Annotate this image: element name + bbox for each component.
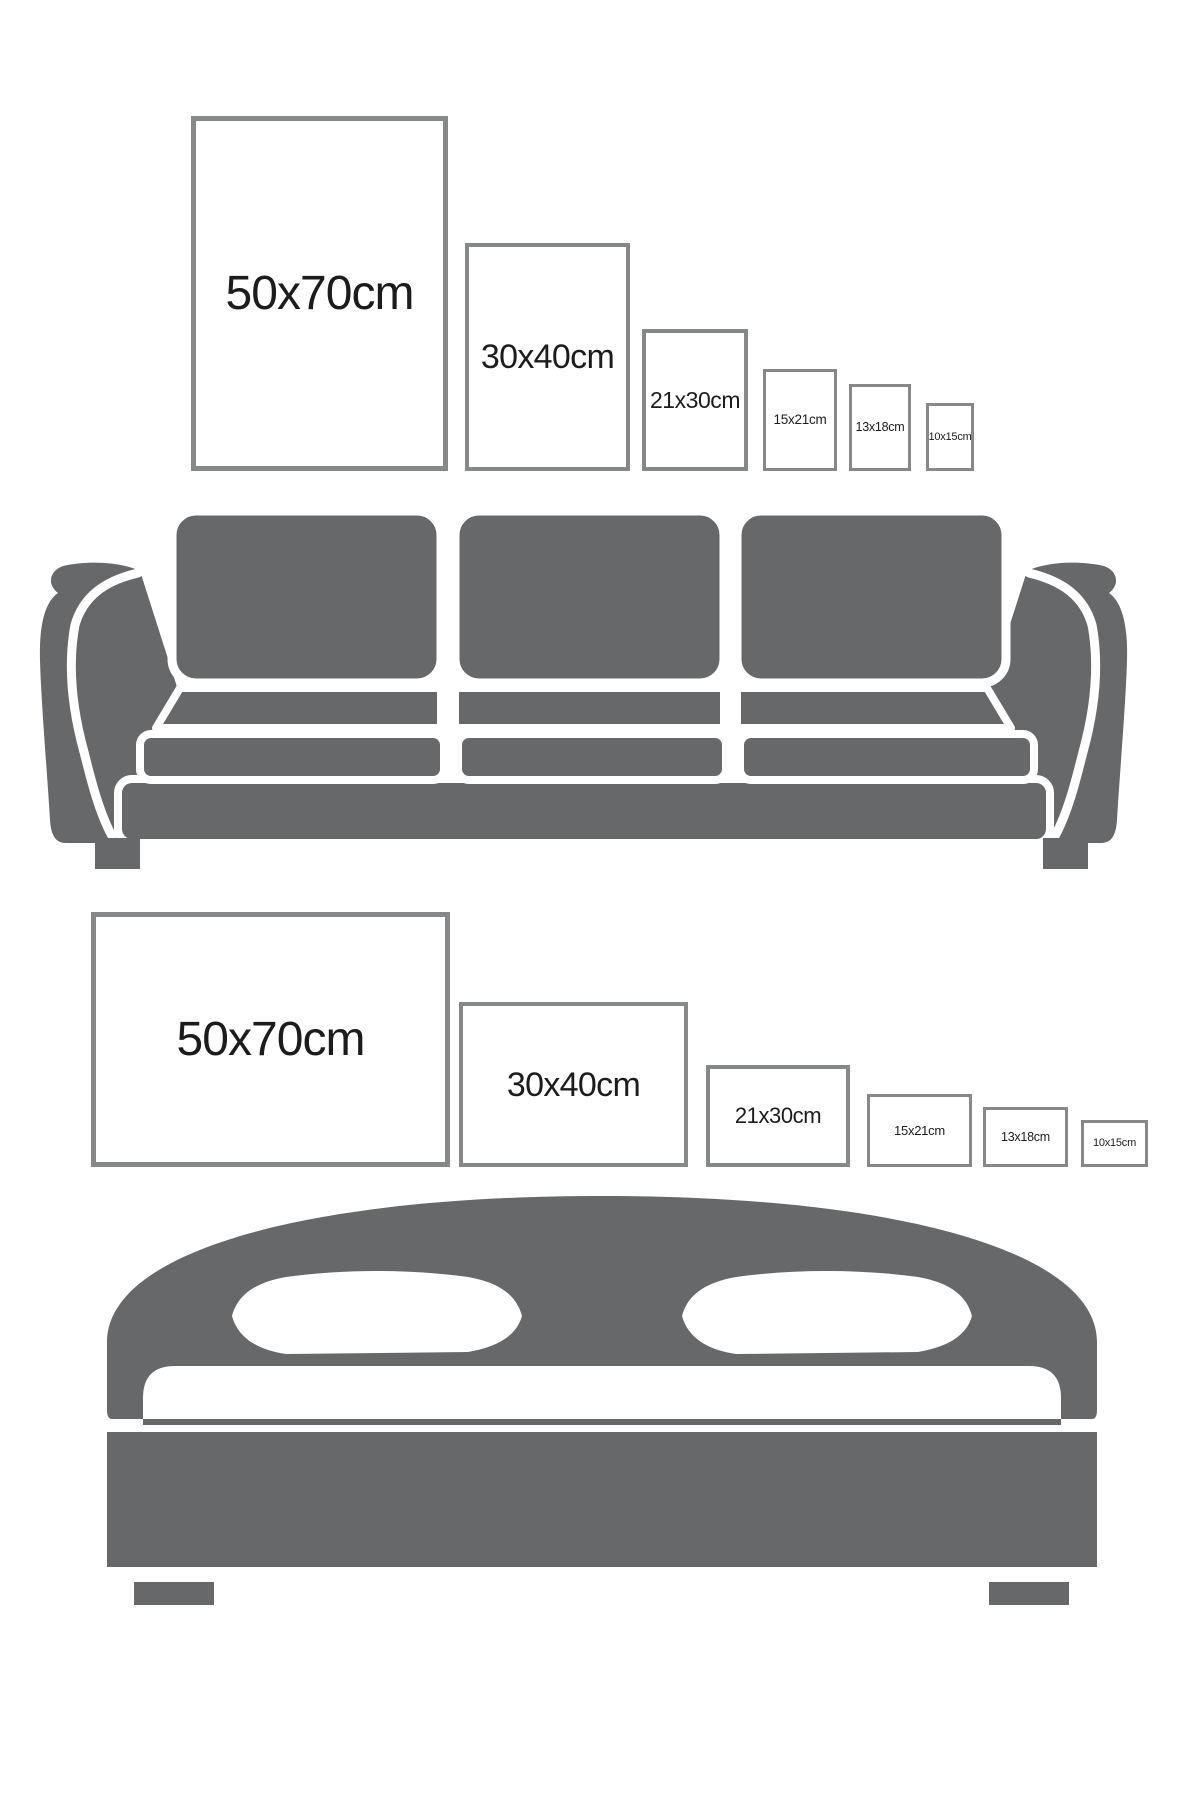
print-size-label: 30x40cm: [481, 340, 614, 374]
print-size-frame: 15x21cm: [867, 1094, 972, 1167]
print-size-label: 50x70cm: [225, 270, 413, 318]
print-size-frame: 30x40cm: [465, 243, 630, 471]
print-size-frame: 50x70cm: [191, 116, 448, 471]
poster-size-comparison-diagram: 50x70cm 30x40cm 21x30cm 15x21cm 13x18cm …: [0, 0, 1200, 1800]
print-size-frame: 10x15cm: [926, 403, 974, 471]
sofa-back-cushion-left: [172, 511, 441, 683]
print-size-frame: 10x15cm: [1081, 1120, 1148, 1167]
print-size-frame: 50x70cm: [91, 912, 450, 1167]
sofa-base: [118, 779, 1050, 843]
print-size-label: 21x30cm: [735, 1105, 821, 1127]
sofa-leg-left: [95, 838, 140, 869]
bed-headboard-with-pillow-cutouts: [107, 1196, 1097, 1425]
print-size-frame: 13x18cm: [849, 384, 911, 471]
bed-leg-left: [134, 1582, 214, 1605]
sofa-deck-center: [455, 688, 724, 728]
print-size-frame: 13x18cm: [983, 1107, 1068, 1167]
bed-illustration: [100, 1190, 1105, 1610]
sofa-back-cushion-right: [737, 511, 1006, 683]
print-size-label: 13x18cm: [1001, 1131, 1050, 1144]
print-size-frame: 15x21cm: [763, 369, 837, 471]
print-size-label: 13x18cm: [856, 421, 905, 434]
print-size-frame: 21x30cm: [642, 329, 748, 471]
sofa-deck-right: [737, 688, 1011, 728]
bed-leg-right: [989, 1582, 1069, 1605]
print-size-label: 15x21cm: [894, 1124, 945, 1137]
sofa-seat-cushion-right: [740, 734, 1034, 780]
sofa-seat-cushion-left: [140, 734, 444, 780]
print-size-label: 10x15cm: [928, 432, 971, 443]
print-size-label: 21x30cm: [650, 389, 740, 412]
sofa-back-cushion-center: [455, 511, 724, 683]
sofa-leg-right: [1043, 838, 1088, 869]
sofa-seat-cushion-center: [458, 734, 726, 780]
bed-base: [107, 1432, 1097, 1567]
print-size-frame: 30x40cm: [459, 1002, 688, 1167]
print-size-label: 50x70cm: [176, 1016, 364, 1064]
sofa-deck-left: [156, 688, 441, 728]
print-size-label: 30x40cm: [507, 1068, 640, 1102]
print-size-label: 10x15cm: [1093, 1138, 1136, 1149]
print-size-frame: 21x30cm: [706, 1065, 850, 1167]
sofa-illustration: [38, 500, 1130, 875]
print-size-label: 15x21cm: [774, 413, 827, 427]
